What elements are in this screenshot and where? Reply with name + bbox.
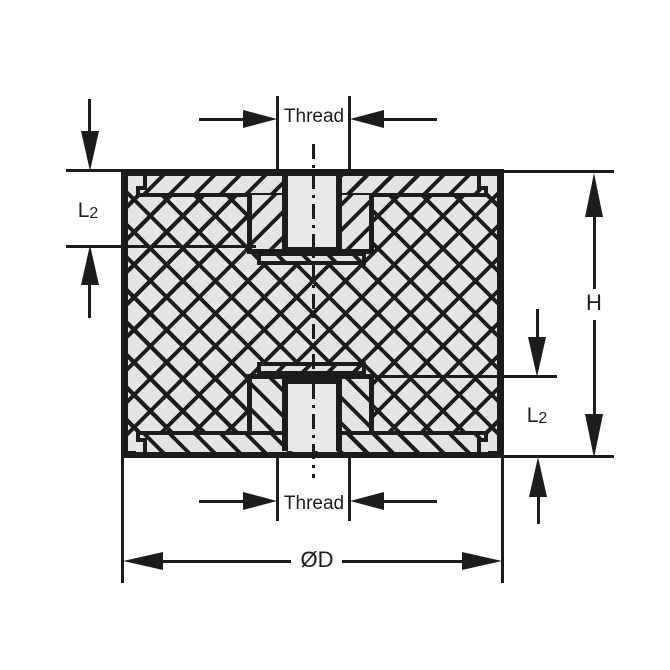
h-label: H (569, 291, 619, 315)
od-label: ØD (292, 548, 342, 572)
h-dim-stem-lower (593, 320, 596, 416)
left-arrow-icon (123, 552, 163, 570)
vertical-centerline (312, 144, 315, 478)
od-dim-stem-left (161, 560, 291, 563)
bottom-insert-depth-line (370, 375, 557, 378)
right-arrow-icon (462, 552, 502, 570)
bottom-flange-left-notch (136, 438, 147, 452)
up-arrow-icon (81, 245, 99, 285)
down-arrow-icon (81, 131, 99, 171)
l2-right-label-sub: 2 (538, 407, 547, 430)
top-insert-depth-line (66, 245, 256, 248)
thread-top-left-arrow-stem (199, 118, 245, 121)
thread-top-label: Thread (264, 106, 364, 127)
top-flange-right-notch (477, 176, 488, 190)
l2-left-label: L2 (63, 199, 113, 224)
thread-top-right-arrow-stem (384, 118, 437, 121)
l2-right-label-main: L (527, 404, 539, 427)
technical-drawing-canvas: Thread L2 H L2 Thread ØD (0, 0, 670, 670)
l2-right-label: L2 (512, 404, 562, 429)
l2-right-bottom-arrow-stem (537, 495, 540, 524)
up-arrow-icon (585, 173, 603, 217)
bottom-flange-right-notch (477, 438, 488, 452)
od-dim-stem-right (342, 560, 462, 563)
l2-left-label-main: L (78, 199, 90, 222)
l2-right-top-arrow-stem (536, 309, 539, 339)
top-flange-left-notch (136, 176, 147, 190)
thread-bottom-left-arrow-stem (199, 500, 245, 503)
up-arrow-icon (529, 457, 547, 497)
l2-left-label-sub: 2 (89, 202, 98, 225)
down-arrow-icon (585, 414, 603, 458)
thread-bottom-right-arrow-stem (384, 500, 437, 503)
thread-bottom-label: Thread (264, 493, 364, 514)
h-dim-stem-upper (593, 216, 596, 289)
down-arrow-icon (528, 337, 546, 377)
l2-left-bottom-arrow-stem (88, 285, 91, 318)
l2-left-top-arrow-stem (88, 99, 91, 135)
